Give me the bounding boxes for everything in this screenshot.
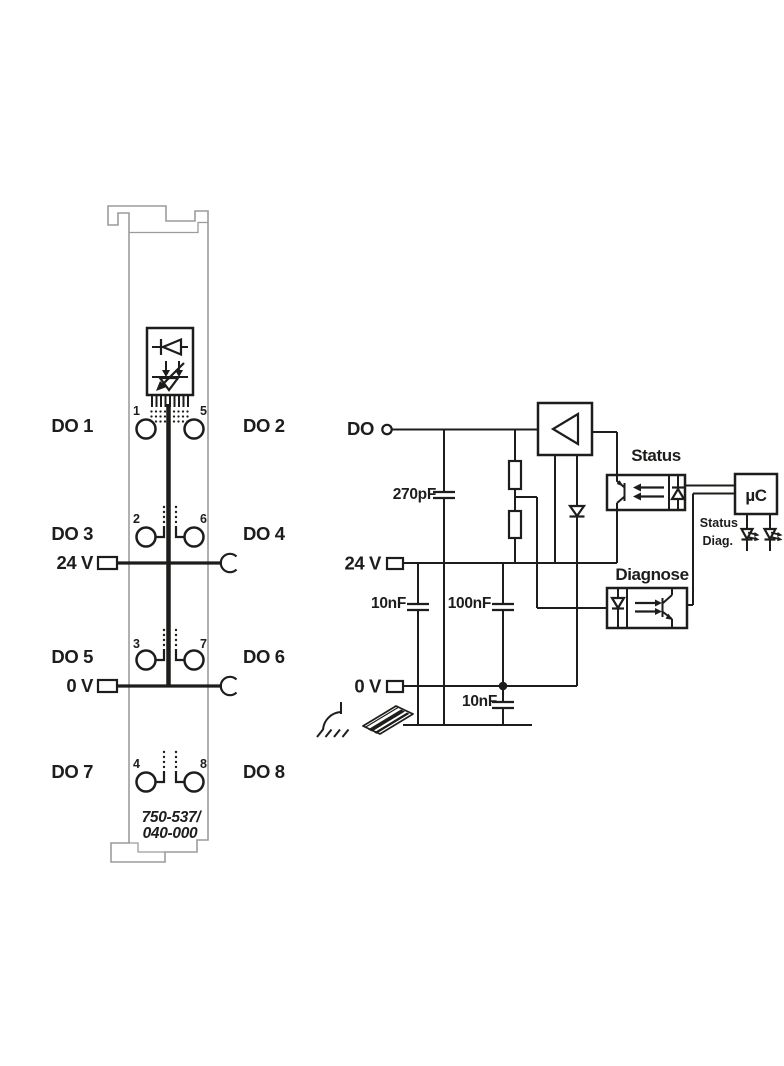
cap-100nf-label: 100nF [448,595,491,612]
led-status-label: Status [700,516,738,530]
resistor-2 [509,511,521,538]
schematic-do-label: DO [347,418,374,439]
label-24v: 24 V [57,552,95,573]
contact-3 [137,651,156,670]
schematic-0v-label: 0 V [354,676,382,697]
wire-driver-output [592,432,617,475]
24v-clamp-hook-icon [221,554,237,572]
module-housing-bottom-detail [129,843,165,852]
earth-ground-icon [317,702,349,737]
pin-number-7: 7 [200,637,207,651]
diagnose-optocoupler [607,588,687,628]
hook-row4 [156,771,185,782]
contact-4 [137,773,156,792]
label-do4: DO 4 [243,523,286,544]
label-do8: DO 8 [243,761,285,782]
24v-terminal-square [98,557,117,569]
module-led-block [147,328,193,395]
schematic-0v-terminal [387,681,403,692]
diagnose-optocoupler-label: Diagnose [615,565,688,584]
part-number-line2: 040-000 [143,825,198,842]
do-terminal-icon [382,425,391,434]
label-0v: 0 V [66,675,94,696]
pin-number-8: 8 [200,757,207,771]
io-module-front-view: DO 1 DO 2 DO 3 DO 4 24 V DO 5 DO 6 0 V D… [51,206,285,862]
schematic-24v-label: 24 V [345,553,383,574]
microcontroller: µC [735,474,777,514]
cap-270pf-label: 270pF [393,486,436,503]
label-do2: DO 2 [243,415,285,436]
status-led-icon [742,514,760,551]
uc-label: µC [745,486,766,505]
module-housing-top-detail [129,223,208,233]
wiring-diagram: DO 1 DO 2 DO 3 DO 4 24 V DO 5 DO 6 0 V D… [0,0,784,1066]
led-diag-label: Diag. [702,534,733,548]
contact-7 [185,651,204,670]
pin-number-3: 3 [133,637,140,651]
label-do1: DO 1 [51,415,93,436]
part-number-line1: 750-537/ [142,809,203,826]
freewheel-diode-icon [570,506,584,516]
pin-number-4: 4 [133,757,140,771]
diag-led-icon [765,514,783,551]
status-opto-box [607,475,685,510]
cap-10nf-bottom-label: 10nF [462,693,497,710]
contact-2 [137,528,156,547]
schematic-24v-terminal [387,558,403,569]
indicator-leds: Status Diag. [700,514,783,551]
circuit-schematic: DO 270pF 24 V 10nF 100nF 0 [317,403,783,737]
label-do5: DO 5 [51,646,93,667]
resistor-1 [509,461,521,489]
contact-5 [185,420,204,439]
din-rail-icon [363,706,413,734]
status-optocoupler-label: Status [631,446,681,465]
contact-1 [137,420,156,439]
status-optocoupler [607,475,685,510]
pin-number-1: 1 [133,404,140,418]
cap-10nf-top-label: 10nF [371,595,406,612]
cap-100nf-plates [492,604,514,610]
label-do7: DO 7 [51,761,93,782]
pin-number-6: 6 [200,512,207,526]
0v-terminal-square [98,680,117,692]
contact-8 [185,773,204,792]
wire-uc-to-diagnose [687,494,735,606]
pin-number-2: 2 [133,512,140,526]
wire-divider-tap [515,497,607,608]
label-do3: DO 3 [51,523,93,544]
cap-10nf-top-plates [407,604,429,610]
datasheet-page: DO 1 DO 2 DO 3 DO 4 24 V DO 5 DO 6 0 V D… [0,0,784,1066]
0v-clamp-hook-icon [221,677,237,695]
cap-270pf-plates [433,492,455,498]
contact-6 [185,528,204,547]
label-do6: DO 6 [243,646,285,667]
pin-number-5: 5 [200,404,207,418]
